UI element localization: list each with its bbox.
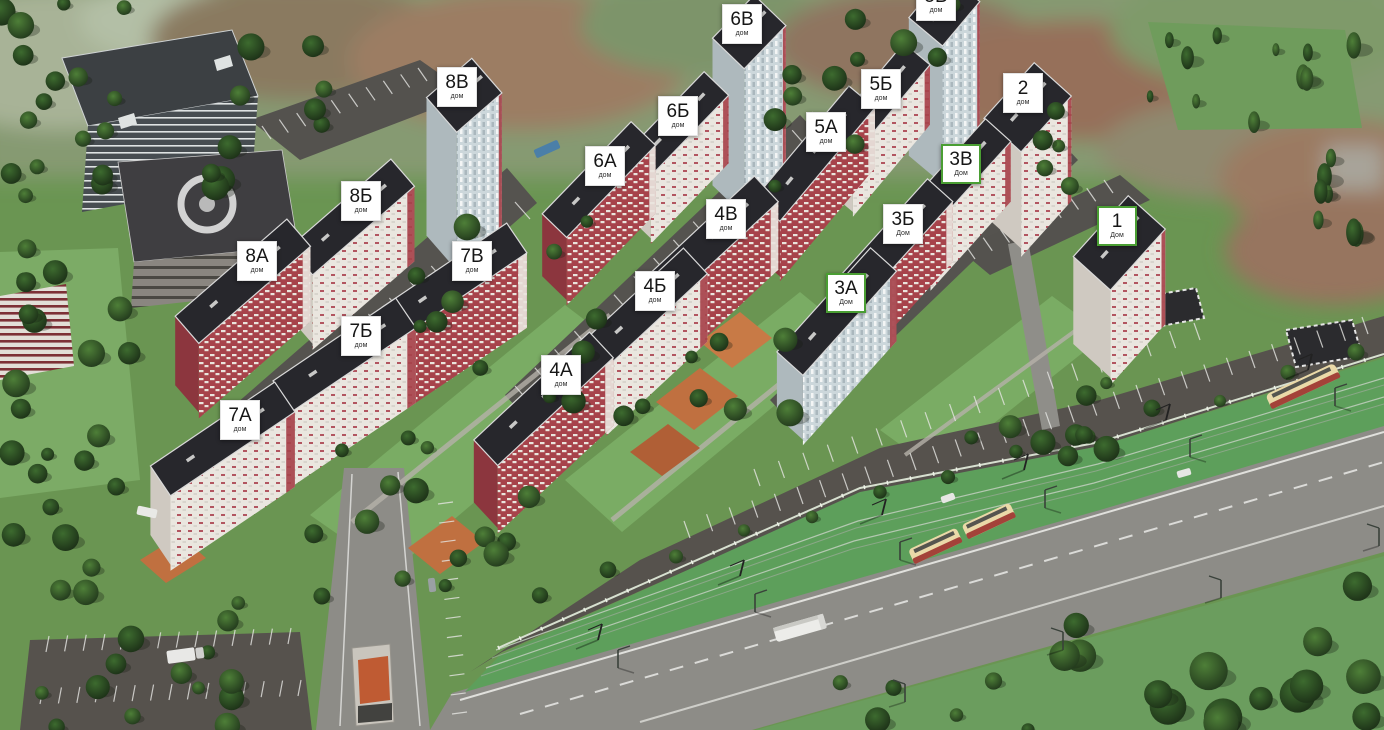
building-label-8a[interactable]: 8Адом — [237, 241, 277, 281]
building-number: 8Б — [349, 187, 372, 206]
building-sublabel: Дом — [954, 170, 968, 178]
building-sublabel: дом — [930, 7, 943, 15]
building-sublabel: дом — [820, 138, 833, 146]
building-label-2[interactable]: 2дом — [1003, 73, 1043, 113]
building-sublabel: дом — [599, 172, 612, 180]
building-label-8v[interactable]: 8Вдом — [437, 67, 477, 107]
building-sublabel: дом — [875, 95, 888, 103]
building-number: 3А — [834, 279, 857, 298]
building-sublabel: дом — [355, 342, 368, 350]
building-label-6a[interactable]: 6Адом — [585, 146, 625, 186]
building-sublabel: дом — [234, 426, 247, 434]
building-label-4a[interactable]: 4Адом — [541, 355, 581, 395]
building-labels-layer: 6Вдом5Вдом8Вдом5Бдом2дом6Бдом5Адом3ВДом6… — [0, 0, 1384, 730]
building-number: 4А — [549, 361, 572, 380]
building-sublabel: дом — [649, 297, 662, 305]
building-sublabel: дом — [251, 267, 264, 275]
building-sublabel: дом — [355, 207, 368, 215]
building-number: 4Б — [643, 277, 666, 296]
building-number: 5А — [814, 118, 837, 137]
building-sublabel: дом — [466, 267, 479, 275]
building-label-8b[interactable]: 8Бдом — [341, 181, 381, 221]
building-label-5a[interactable]: 5Адом — [806, 112, 846, 152]
building-label-5v[interactable]: 5Вдом — [916, 0, 956, 21]
building-number: 1 — [1112, 212, 1123, 231]
building-label-3a[interactable]: 3АДом — [826, 273, 866, 313]
building-label-7v[interactable]: 7Вдом — [452, 241, 492, 281]
building-number: 7Б — [349, 322, 372, 341]
building-number: 3В — [949, 150, 972, 169]
building-sublabel: Дом — [839, 299, 853, 307]
building-sublabel: дом — [672, 122, 685, 130]
building-number: 6А — [593, 152, 616, 171]
building-label-7a[interactable]: 7Адом — [220, 400, 260, 440]
building-number: 6Б — [666, 102, 689, 121]
building-label-6b[interactable]: 6Бдом — [658, 96, 698, 136]
building-label-4v[interactable]: 4Вдом — [706, 199, 746, 239]
building-label-7b[interactable]: 7Бдом — [341, 316, 381, 356]
building-sublabel: дом — [720, 225, 733, 233]
building-label-1[interactable]: 1Дом — [1097, 206, 1137, 246]
building-number: 8А — [245, 247, 268, 266]
building-label-6v[interactable]: 6Вдом — [722, 4, 762, 44]
building-number: 5В — [924, 0, 947, 6]
building-number: 7А — [228, 406, 251, 425]
building-number: 4В — [714, 205, 737, 224]
building-number: 5Б — [869, 75, 892, 94]
masterplan-scene: 6Вдом5Вдом8Вдом5Бдом2дом6Бдом5Адом3ВДом6… — [0, 0, 1384, 730]
building-sublabel: дом — [451, 93, 464, 101]
building-number: 6В — [730, 10, 753, 29]
building-sublabel: дом — [736, 30, 749, 38]
building-label-3v[interactable]: 3ВДом — [941, 144, 981, 184]
building-label-4b[interactable]: 4Бдом — [635, 271, 675, 311]
building-number: 8В — [445, 73, 468, 92]
building-sublabel: дом — [1017, 99, 1030, 107]
building-number: 3Б — [891, 210, 914, 229]
building-label-5b[interactable]: 5Бдом — [861, 69, 901, 109]
building-sublabel: Дом — [1110, 232, 1124, 240]
building-sublabel: дом — [555, 381, 568, 389]
building-number: 2 — [1018, 79, 1029, 98]
building-label-3b[interactable]: 3БДом — [883, 204, 923, 244]
building-number: 7В — [460, 247, 483, 266]
building-sublabel: Дом — [896, 230, 910, 238]
